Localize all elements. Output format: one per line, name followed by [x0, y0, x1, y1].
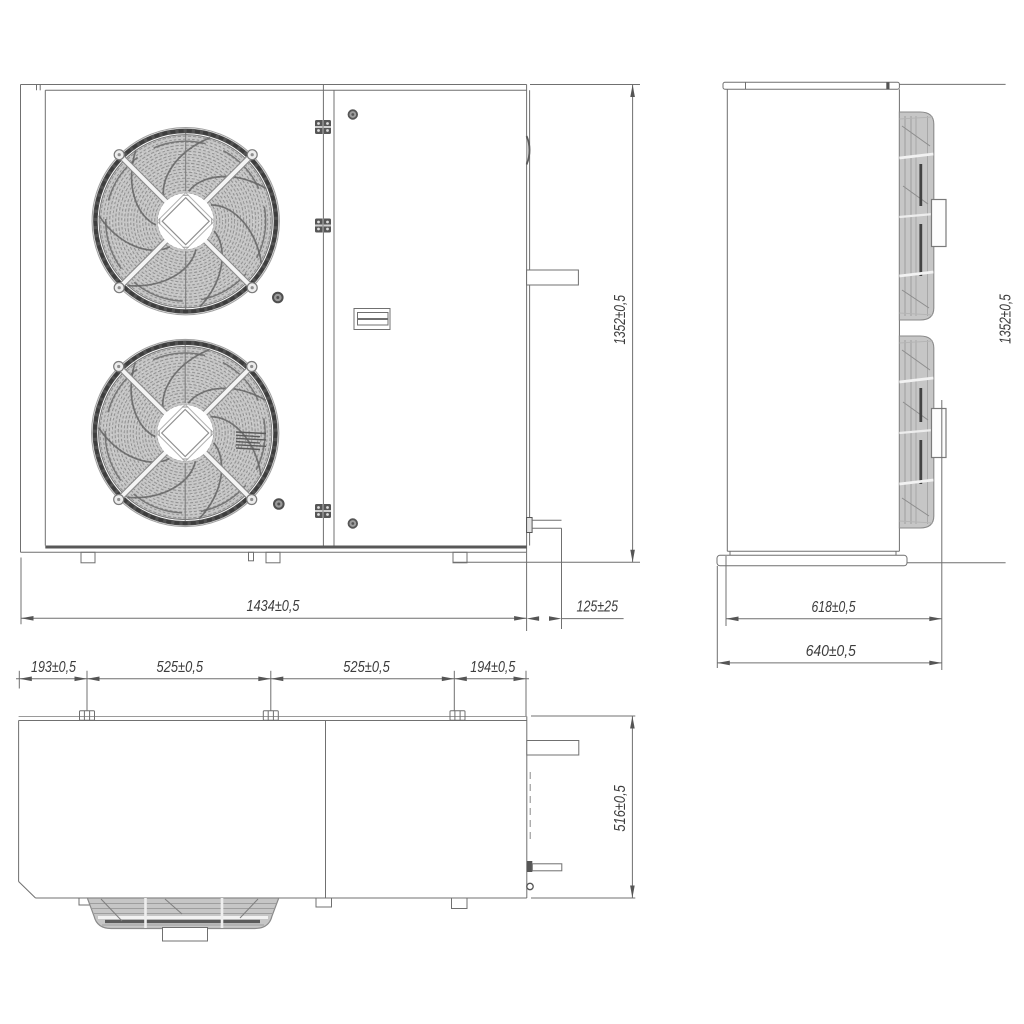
svg-text:125±25: 125±25 — [577, 599, 619, 616]
svg-text:525±0,5: 525±0,5 — [157, 659, 204, 676]
svg-text:194±0,5: 194±0,5 — [470, 659, 515, 676]
svg-text:640±0,5: 640±0,5 — [806, 643, 856, 660]
svg-text:1352±0,5: 1352±0,5 — [612, 295, 629, 345]
svg-text:618±0,5: 618±0,5 — [812, 599, 856, 616]
svg-text:193±0,5: 193±0,5 — [31, 659, 76, 676]
svg-text:516±0,5: 516±0,5 — [612, 785, 629, 832]
svg-text:525±0,5: 525±0,5 — [343, 659, 390, 676]
svg-text:1434±0,5: 1434±0,5 — [247, 598, 300, 615]
svg-text:1352±0,5: 1352±0,5 — [997, 294, 1014, 344]
